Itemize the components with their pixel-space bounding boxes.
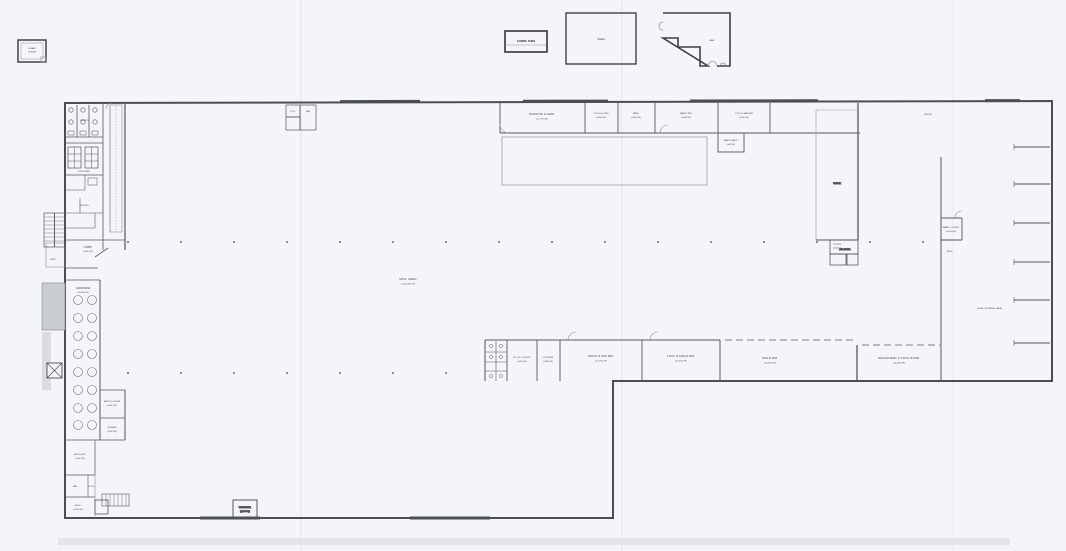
room-area-tools: (±400 SF) [596,117,606,119]
garage-label: GAR. [709,39,715,42]
top-room-labels: PACKING & SHIP. (±1,750 SF) TOOLS & DIES… [290,110,753,146]
room-label-stock: STOCK [833,183,841,185]
room-label-lockers: LOCKERS [543,357,554,359]
room-label-lunch: LUNCH RM. [78,171,91,173]
vestibule [42,283,65,390]
room-area-mens-locker: (±450 SF) [107,405,117,407]
room-area-parts: (±50 SF) [727,144,736,146]
top-room-row [106,103,860,185]
stock-area: STOCK AIR COMP. [816,103,858,265]
room-label-jan: JAN. [73,485,78,488]
compressor-shed: COMPR. SHED [505,31,547,52]
room-label-cafeteria: CAFETERIA [76,286,91,290]
main-area-name: MFG. AREA [399,277,416,281]
room-area-paint: (±350 SF) [631,117,641,119]
bottom-room-labels: M. & W. TOILETS (±550 SF) LOCKERS (±350 … [513,354,920,365]
room-label-womens: WOMEN [108,427,117,429]
room-label-paint: PAINT [633,112,640,115]
room-area-ac-equip: (±500 SF) [75,458,85,460]
room-area-mw-toilets: (±550 SF) [517,361,527,363]
room-label-ac-equip: A/C EQUIP. [74,453,86,456]
compressor-shed-label: COMPR. SHED [517,39,535,43]
room-label-waste: WASTE RM. [239,506,252,509]
room-label-moldrm: MOLD RM. [762,356,778,360]
room-label-mens-locker: MEN'S LOCKER [104,401,121,403]
main-area-label: MFG. AREA (±118,000 SF) [399,277,416,286]
room-label-paintmix: PAINT & MIX RM. [588,354,613,358]
room-label-machstor: MACHINERY & TOOL STOR. [878,356,920,360]
room-label-elec-right: ELEC. [947,251,954,253]
room-area-womens: (±300 SF) [107,431,117,433]
room-area-waste: (±150 SF) [240,511,250,513]
room-label-aircomp: AIR COMP. [839,248,851,251]
storage-shed-label: SHED [597,37,604,41]
room-label-parts: PARTS VAULT [724,139,739,142]
room-area-maint: (±500 SF) [681,117,691,119]
room-label-offices: OFFICES [79,205,89,207]
room-area-paintmix: (±1,700 SF) [595,361,607,363]
note-metal-panel: EDGE OF METAL PANEL [977,307,1003,310]
room-label-maint: MAINT. RM. [680,112,692,115]
room-label-elec-left: ELEC. [75,505,82,507]
room-area-packing: (±1,750 SF) [536,119,548,121]
room-area-elec-left: (±150 SF) [73,509,83,511]
main-area-size: (±118,000 SF) [401,284,415,286]
room-label-office: OFFICE [924,114,933,116]
room-area-moldrm: (±3,000 SF) [764,363,776,365]
bottom-room-row [485,332,940,381]
room-area-lockers: (±350 SF) [543,361,553,363]
storage-shed: SHED [566,13,636,64]
room-label-toil-top: TOIL. [290,111,296,113]
room-area-toolmold: (±1,500 SF) [675,361,687,363]
room-label-mw-toilets: M. & W. TOILETS [513,357,531,359]
room-label-tools: TOOLS & DIES [593,113,609,115]
right-side-labels: MAINT. CLOSET (±100 SF) ELEC. EDGE OF ME… [943,226,1004,310]
stairs-bottom [102,494,129,506]
room-area-toolmaster: (±900 SF) [739,117,749,119]
room-label-packing: PACKING & SHIP. [529,112,555,116]
cafeteria-tables [74,296,97,430]
guard-house: GUARD HOUSE [18,40,46,62]
floor-plan-page: GUARD HOUSE COMPR. SHED SHED GAR. [0,0,1066,551]
right-side [941,144,1050,381]
room-label-lobby: LOBBY [84,245,93,249]
scan-artifacts [58,0,1010,551]
column-grid-marks [127,242,935,373]
floor-plan-drawing: GUARD HOUSE COMPR. SHED SHED GAR. [0,0,1066,551]
room-label-toolmaster: TOOL & MASTER [735,112,753,115]
room-label-toilets: TOILETS [79,120,89,122]
room-label-maint-closet: MAINT. CLOSET [943,226,960,229]
room-area-maint-closet: (±100 SF) [946,231,956,233]
room-area-cafeteria: (±2,600 SF) [77,292,89,294]
room-area-lobby: (±350 SF) [83,251,93,253]
waste-room: WASTE RM. (±150 SF) [233,500,257,517]
guard-house-label-1: GUARD [28,47,36,50]
room-area-machstor: (±1,800 SF) [893,363,905,365]
guard-house-label-2: HOUSE [28,52,36,54]
garage-building: GAR. [659,13,730,66]
building-outline [65,101,1052,518]
room-label-stor: STOR. [88,486,95,488]
stairs-left [44,213,65,247]
room-label-toolmold: TOOL & MOLD RM. [667,354,695,358]
room-label-jan-top: JAN. [306,110,311,113]
room-label-vest: VEST. [50,259,56,261]
